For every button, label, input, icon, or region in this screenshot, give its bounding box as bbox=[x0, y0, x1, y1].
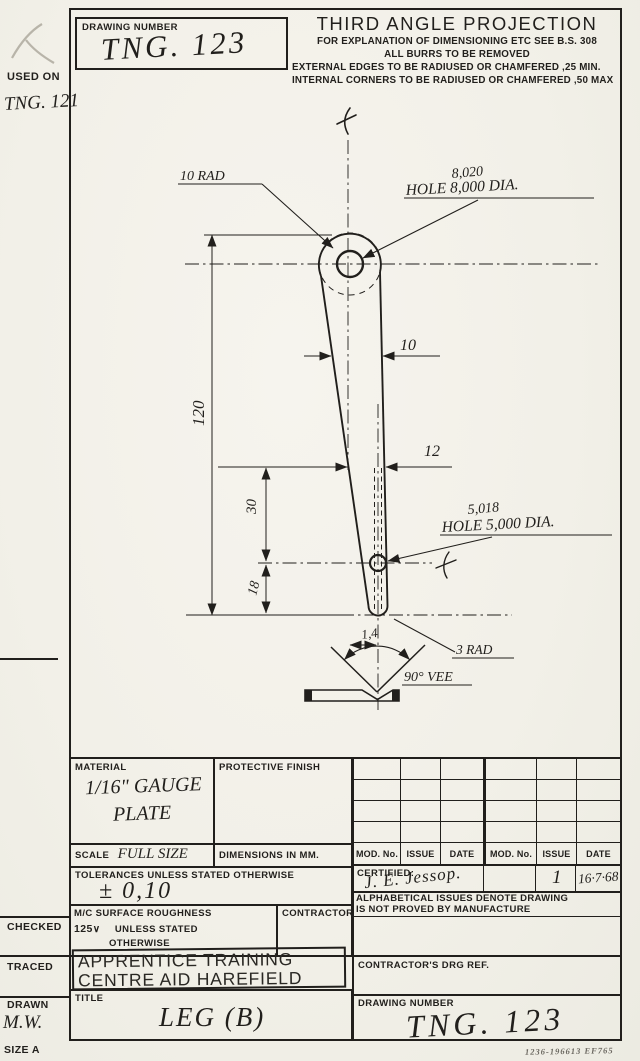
mod-cell bbox=[577, 759, 620, 780]
margin-divider bbox=[0, 955, 70, 957]
issue-value: 1 bbox=[552, 867, 562, 889]
scale-value: FULL SIZE bbox=[118, 846, 188, 862]
material-cell: MATERIAL 1/16" GAUGE PLATE bbox=[69, 757, 215, 845]
issues-note-line1: ALPHABETICAL ISSUES DENOTE DRAWING bbox=[356, 893, 621, 904]
mod-cell bbox=[401, 822, 441, 843]
scale-label: SCALE bbox=[75, 850, 109, 861]
issue-cell: 1 bbox=[536, 866, 576, 891]
surface-label-line2: UNLESS STATED bbox=[115, 924, 198, 935]
mod-header: DATE bbox=[577, 843, 620, 864]
mod-header: MOD. No. bbox=[354, 843, 401, 864]
mod-number-cell bbox=[484, 866, 536, 891]
surface-roughness-value: 125 bbox=[74, 923, 93, 935]
drawn-label: DRAWN bbox=[7, 1000, 49, 1011]
mod-cell bbox=[441, 759, 484, 780]
dimensions-label: DIMENSIONS IN MM. bbox=[219, 850, 351, 861]
margin-divider bbox=[0, 658, 58, 660]
certified-row: CERTIFIED: J. E. Jessop. 1 16·7·68 bbox=[352, 864, 622, 893]
surface-label-line1: M/C SURFACE ROUGHNESS bbox=[74, 908, 276, 919]
margin-divider bbox=[0, 916, 70, 918]
mod-cell bbox=[441, 780, 484, 801]
stamp-line2: CENTRE AID HAREFIELD bbox=[78, 969, 340, 991]
mod-cell bbox=[577, 801, 620, 822]
traced-label: TRACED bbox=[7, 962, 53, 973]
note-line: INTERNAL CORNERS TO BE RADIUSED OR CHAMF… bbox=[292, 74, 622, 87]
mod-cell bbox=[354, 801, 401, 822]
mod-cell bbox=[401, 801, 441, 822]
protective-finish-cell: PROTECTIVE FINISH bbox=[213, 757, 353, 845]
mod-cell bbox=[401, 759, 441, 780]
note-line: FOR EXPLANATION OF DIMENSIONING ETC SEE … bbox=[292, 35, 622, 48]
mod-cell bbox=[537, 780, 577, 801]
scale-cell: SCALE FULL SIZE bbox=[69, 843, 215, 868]
drawing-sheet: USED ON TNG. 121 CHECKED TRACED DRAWN M.… bbox=[0, 0, 640, 1061]
material-label: MATERIAL bbox=[75, 762, 213, 773]
mod-cell bbox=[354, 780, 401, 801]
note-line: EXTERNAL EDGES TO BE RADIUSED OR CHAMFER… bbox=[292, 61, 622, 74]
note-line: ALL BURRS TO BE REMOVED bbox=[292, 48, 622, 61]
material-value-line2: PLATE bbox=[113, 800, 214, 826]
used-on-label: USED ON bbox=[7, 72, 60, 83]
certified-cell: CERTIFIED: J. E. Jessop. bbox=[354, 866, 484, 891]
drawn-value: M.W. bbox=[3, 1012, 42, 1034]
material-value-line1: 1/16" GAUGE bbox=[85, 773, 214, 800]
mod-cell bbox=[577, 822, 620, 843]
contractor-label: CONTRACTOR bbox=[282, 908, 351, 919]
mod-cell bbox=[441, 801, 484, 822]
margin-divider bbox=[0, 996, 70, 998]
contractors-ref-label: CONTRACTOR'S DRG REF. bbox=[358, 960, 620, 971]
mod-header: MOD. No. bbox=[484, 843, 537, 864]
mod-cell bbox=[537, 801, 577, 822]
drawing-number-box: DRAWING NUMBER TNG. 123 bbox=[75, 17, 288, 70]
mod-cell bbox=[537, 759, 577, 780]
mod-cell bbox=[577, 780, 620, 801]
mod-header: ISSUE bbox=[537, 843, 577, 864]
date-cell: 16·7·68 bbox=[576, 866, 620, 891]
mod-cell bbox=[401, 780, 441, 801]
issues-note: ALPHABETICAL ISSUES DENOTE DRAWING IS NO… bbox=[352, 891, 622, 917]
company-stamp: APPRENTICE TRAINING CENTRE AID HAREFIELD bbox=[72, 947, 346, 991]
projection-block: THIRD ANGLE PROJECTION FOR EXPLANATION O… bbox=[292, 13, 622, 87]
mod-issue-table: MOD. No. ISSUE DATE MOD. No. ISSUE DATE bbox=[352, 757, 622, 866]
mod-cell bbox=[354, 759, 401, 780]
projection-title: THIRD ANGLE PROJECTION bbox=[292, 13, 622, 35]
drawing-number-cell: DRAWING NUMBER TNG. 123 bbox=[352, 994, 622, 1041]
contractors-ref-cell: CONTRACTOR'S DRG REF. bbox=[352, 955, 622, 996]
mod-cell bbox=[537, 822, 577, 843]
mod-header: ISSUE bbox=[401, 843, 441, 864]
general-notes: FOR EXPLANATION OF DIMENSIONING ETC SEE … bbox=[292, 35, 622, 87]
mod-header: DATE bbox=[441, 843, 484, 864]
mod-cell bbox=[484, 801, 537, 822]
mod-cell bbox=[484, 780, 537, 801]
sheet-size-label: SIZE A bbox=[4, 1045, 40, 1056]
mod-cell bbox=[354, 822, 401, 843]
pencil-mark bbox=[12, 24, 54, 63]
roughness-check-icon: ∨ bbox=[93, 924, 101, 935]
mod-cell bbox=[441, 822, 484, 843]
mod-cell bbox=[484, 759, 537, 780]
tolerances-value: ± 0,10 bbox=[99, 878, 351, 905]
footer-stamp: 1236-196613 EF765 bbox=[525, 1045, 614, 1057]
checked-label: CHECKED bbox=[7, 922, 62, 933]
mod-cell bbox=[484, 822, 537, 843]
tolerances-cell: TOLERANCES UNLESS STATED OTHERWISE ± 0,1… bbox=[69, 866, 353, 906]
issues-note-line2: IS NOT PROVED BY MANUFACTURE bbox=[356, 904, 621, 915]
title-value: LEG (B) bbox=[159, 1002, 351, 1033]
protective-finish-label: PROTECTIVE FINISH bbox=[219, 762, 351, 773]
dimensions-cell: DIMENSIONS IN MM. bbox=[213, 843, 353, 868]
date-value: 16·7·68 bbox=[577, 869, 619, 888]
title-cell: TITLE LEG (B) bbox=[69, 989, 353, 1041]
